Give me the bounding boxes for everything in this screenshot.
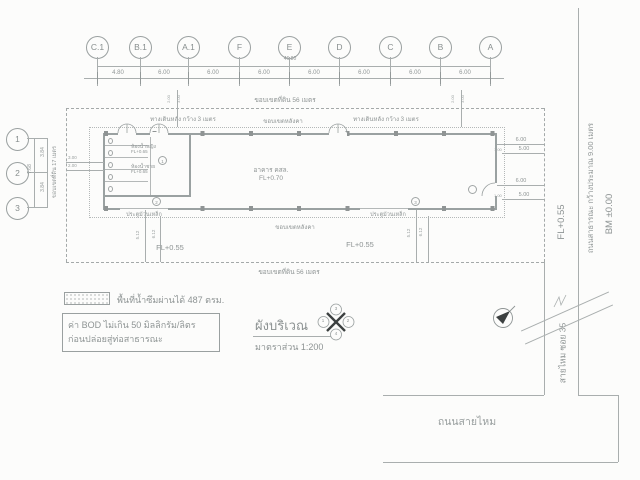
grid-bubble-d: D (328, 36, 351, 59)
overall-dim-line (97, 66, 490, 67)
elevation-number-bottom: 4 (332, 331, 340, 336)
dim-tick (289, 72, 290, 84)
dim-label: 5.12 (406, 218, 418, 248)
road-edge-right (618, 395, 619, 462)
small-dim: 1.00 (494, 193, 502, 198)
small-dim: 1.00 (494, 147, 502, 152)
dim-label: 6.12 (418, 217, 430, 247)
drawing-scale: มาตราส่วน 1:200 (255, 340, 323, 354)
dim-tick (440, 72, 441, 84)
dim-label: 6.00 (505, 178, 537, 184)
dim-line (497, 185, 544, 186)
boundary-line-left (66, 108, 67, 262)
grid-bubble-b: B (429, 36, 452, 59)
dim-label: 3.84 (40, 172, 46, 202)
dim-line (502, 199, 544, 200)
dim-label: 6.00 (349, 70, 379, 76)
dim-label: 6.00 (299, 70, 329, 76)
dim-line (502, 153, 544, 154)
elevation-number-top: 3 (332, 306, 340, 311)
boundary-line-right (544, 108, 545, 262)
small-dim: 2.00 (68, 163, 77, 168)
boundary-label-bottom: ขอบเขตที่ดิน 56 เมตร (243, 267, 335, 277)
rolling-door-label-left: ประตูม้วนเหล็ก (112, 211, 176, 219)
toilet-fixture (108, 138, 113, 144)
toilet-fixture (108, 162, 113, 168)
rolling-door-line (120, 208, 168, 209)
yard-level-left: FL+0.55 (146, 243, 194, 252)
road-name-bottom: ถนนสายไหม (415, 413, 519, 430)
double-door-icon (150, 124, 168, 133)
elevation-number-right: 2 (344, 318, 352, 323)
grid-bubble-f: F (228, 36, 251, 59)
boundary-label-top: ขอบเขตที่ดิน 56 เมตร (240, 95, 330, 105)
boundary-line-top (66, 108, 544, 109)
grid-bubble-1: 1 (6, 128, 29, 151)
dim-tick (339, 72, 340, 84)
dim-label: 6.00 (505, 137, 537, 143)
toilet-men-level: FL+0.65 (131, 169, 148, 174)
road-edge-bottom (383, 462, 618, 463)
road-edge-left (544, 262, 545, 395)
road-fl-label: FL+0.55 (556, 192, 568, 252)
road-edge-top (578, 395, 618, 396)
roof-label-bottom: ขอบเขตหลังคา (262, 222, 328, 232)
grid-bubble-c: C (379, 36, 402, 59)
north-arrow-icon (489, 303, 519, 333)
small-dim: 3.00 (68, 155, 77, 160)
building-level-label: FL+0.70 (241, 175, 301, 182)
permeable-label: พื้นที่น้ำซึมผ่านได้ 487 ตรม. (117, 293, 224, 307)
break-mark-icon (552, 293, 568, 309)
boundary-line-bottom (66, 262, 544, 263)
bod-note-line2: ก่อนปล่อยสู่ท่อสาธารณะ (68, 332, 163, 346)
grid-bubble-c1: C.1 (86, 36, 109, 59)
small-dim: 3.00 (460, 89, 472, 109)
soi-label: สายไหม ซอย 35 (556, 306, 568, 401)
door-tag: 1 (158, 156, 167, 165)
grid-bubble-3: 3 (6, 197, 29, 220)
dim-tick (140, 72, 141, 84)
road-edge-right (578, 8, 579, 395)
elevation-number-left: 1 (319, 318, 327, 323)
toilet-wall-bottom (103, 195, 191, 197)
toilet-fixture (108, 174, 113, 180)
door-tag: 3 (411, 197, 420, 206)
dim-label: 4.80 (103, 70, 133, 76)
door-tag-circle (468, 185, 477, 194)
building-name-label: อาคาร คสล. (241, 165, 301, 175)
stall-partition (105, 181, 148, 182)
site-plan-drawing: C.1 B.1 A.1 F E D C B A 46.80 4.80 6.00 … (0, 0, 640, 480)
dim-label: 6.00 (249, 70, 279, 76)
grid-bubble-b1: B.1 (129, 36, 152, 59)
door-tag: 2 (152, 197, 161, 206)
double-door-icon (329, 124, 347, 133)
toilet-wall-right (189, 133, 191, 196)
dim-tick (188, 72, 189, 84)
double-door-icon (118, 124, 136, 133)
road-name-vertical: ถนนสาธารณะ กว้างประมาณ 9.00 เมตร (585, 38, 597, 338)
grid-bubble-a1: A.1 (177, 36, 200, 59)
walkway-label-right: ทางเดินหลัง กว้าง 3 เมตร (336, 114, 436, 124)
dim-label: 7.68 (27, 154, 33, 184)
walkway-label-left: ทางเดินหลัง กว้าง 3 เมตร (130, 114, 236, 124)
road-edge-top (383, 395, 544, 396)
toilet-women-level: FL+0.65 (131, 149, 148, 154)
dim-label: 5.00 (508, 192, 540, 198)
small-dim: 3.00 (176, 89, 188, 109)
dim-line (497, 144, 544, 145)
grid-bubble-a: A (479, 36, 502, 59)
dim-label: 6.00 (450, 70, 480, 76)
grid-stem (27, 207, 48, 208)
dim-tick (97, 72, 98, 84)
break-line (525, 305, 613, 345)
dim-label: 6.00 (198, 70, 228, 76)
dim-label: 5.00 (508, 146, 540, 152)
dim-line (66, 170, 104, 171)
dim-line (34, 138, 35, 207)
dim-tick (390, 72, 391, 84)
permeable-swatch (64, 292, 110, 305)
drawing-title: ผังบริเวณ (255, 315, 308, 336)
segment-dim-line (84, 78, 504, 79)
bod-note-line1: ค่า BOD ไม่เกิน 50 มิลลิกรัม/ลิตร (68, 318, 196, 332)
dim-line (47, 138, 48, 207)
rolling-door-line (360, 208, 408, 209)
dim-label: 6.00 (400, 70, 430, 76)
yard-level-right: FL+0.55 (334, 240, 386, 249)
toilet-fixture (108, 186, 113, 192)
stall-partition (105, 157, 148, 158)
dim-label: 3.84 (40, 137, 46, 167)
dim-tick (239, 72, 240, 84)
roof-label-top: ขอบเขตหลังคา (250, 116, 316, 126)
dim-label: 6.00 (149, 70, 179, 76)
benchmark-label: BM ±0.00 (604, 181, 616, 247)
grid-bubble-2: 2 (6, 162, 29, 185)
overall-dim-label: 46.80 (262, 56, 318, 62)
toilet-fixture (108, 150, 113, 156)
boundary-label-left: ขอบเขตที่ดิน 17 เมตร (51, 132, 63, 212)
dim-tick (490, 72, 491, 84)
